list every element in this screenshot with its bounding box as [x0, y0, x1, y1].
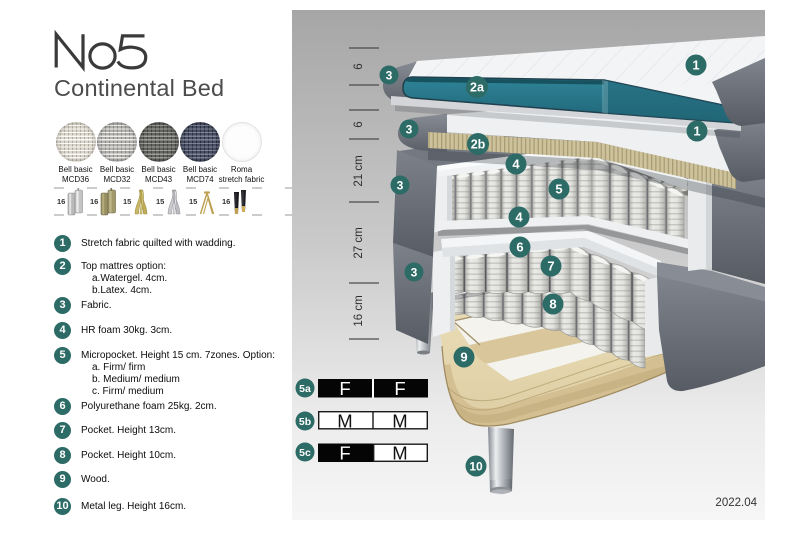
svg-text:F: F — [339, 443, 350, 464]
svg-text:3: 3 — [411, 265, 418, 279]
svg-text:8: 8 — [549, 297, 556, 312]
svg-text:M: M — [392, 411, 407, 432]
svg-text:1: 1 — [692, 58, 699, 73]
svg-text:1: 1 — [693, 124, 700, 139]
svg-text:27 cm: 27 cm — [353, 227, 365, 258]
svg-text:F: F — [394, 378, 405, 399]
svg-text:3: 3 — [397, 178, 404, 192]
svg-text:M: M — [392, 443, 407, 464]
svg-text:21 cm: 21 cm — [353, 155, 365, 186]
svg-text:4: 4 — [512, 157, 520, 172]
svg-text:F: F — [339, 378, 350, 399]
svg-text:6: 6 — [353, 121, 365, 127]
svg-text:6: 6 — [353, 63, 365, 69]
svg-text:3: 3 — [406, 122, 413, 136]
svg-text:M: M — [337, 411, 352, 432]
svg-text:4: 4 — [515, 210, 523, 225]
svg-text:5b: 5b — [299, 416, 311, 428]
svg-text:5: 5 — [555, 182, 562, 197]
svg-text:10: 10 — [469, 459, 483, 473]
svg-text:16 cm: 16 cm — [353, 295, 365, 326]
svg-text:5c: 5c — [299, 447, 311, 459]
svg-text:2b: 2b — [471, 138, 486, 152]
svg-text:3: 3 — [386, 68, 393, 82]
svg-text:2022.04: 2022.04 — [715, 497, 757, 509]
svg-text:5a: 5a — [299, 383, 311, 395]
svg-text:9: 9 — [460, 350, 467, 365]
svg-text:2a: 2a — [470, 81, 485, 95]
svg-text:6: 6 — [516, 240, 523, 255]
svg-text:7: 7 — [547, 259, 554, 274]
